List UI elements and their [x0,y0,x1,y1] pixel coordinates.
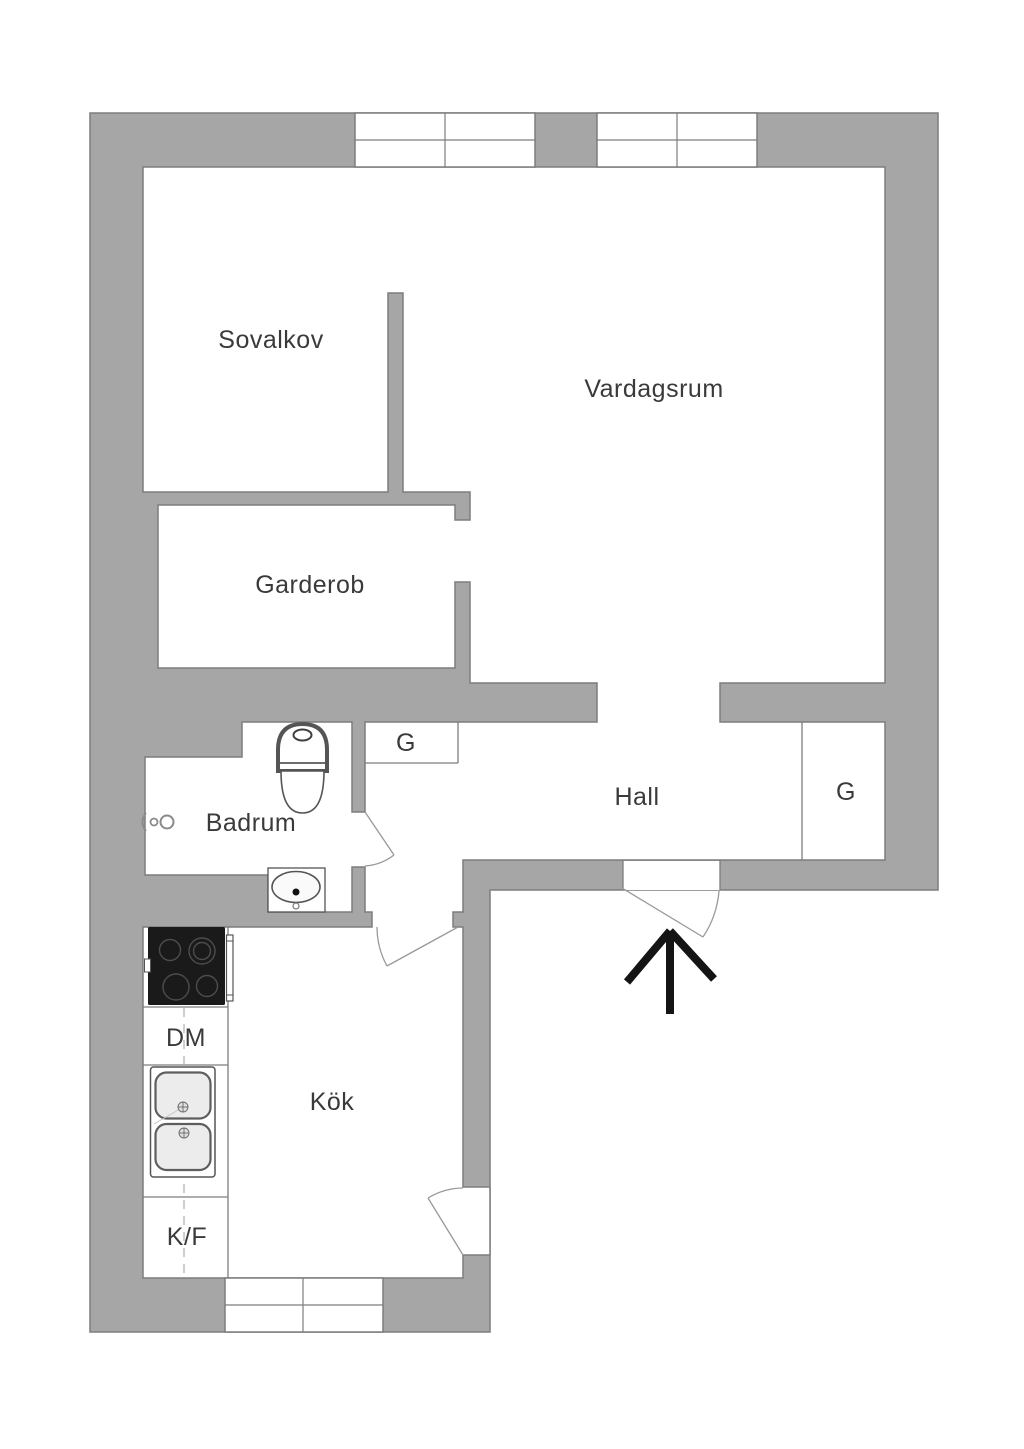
label-sovalkov: Sovalkov [218,326,323,354]
label-hall: Hall [614,783,659,811]
label-fridge-freezer: K/F [167,1223,207,1251]
floorplan-canvas: Sovalkov Vardagsrum Garderob Badrum G Ha… [0,0,1024,1449]
label-dishwasher: DM [166,1024,206,1052]
toilet-icon [278,724,327,813]
kitchen-sink-icon [151,1067,216,1177]
entrance-door [622,888,719,937]
label-badrum: Badrum [206,809,297,837]
stove-icon [145,927,234,1005]
bathroom-sink-icon [268,868,325,912]
label-vardagsrum: Vardagsrum [584,375,723,403]
label-garderob: Garderob [255,571,365,599]
label-closet-right: G [836,778,856,806]
entrance-arrow-icon [627,931,714,1014]
label-kok: Kök [310,1088,355,1116]
window-top-left [355,113,535,167]
label-closet-left: G [396,729,416,757]
window-bottom [225,1278,383,1332]
entrance-opening [623,861,720,890]
window-top-right [597,113,757,167]
